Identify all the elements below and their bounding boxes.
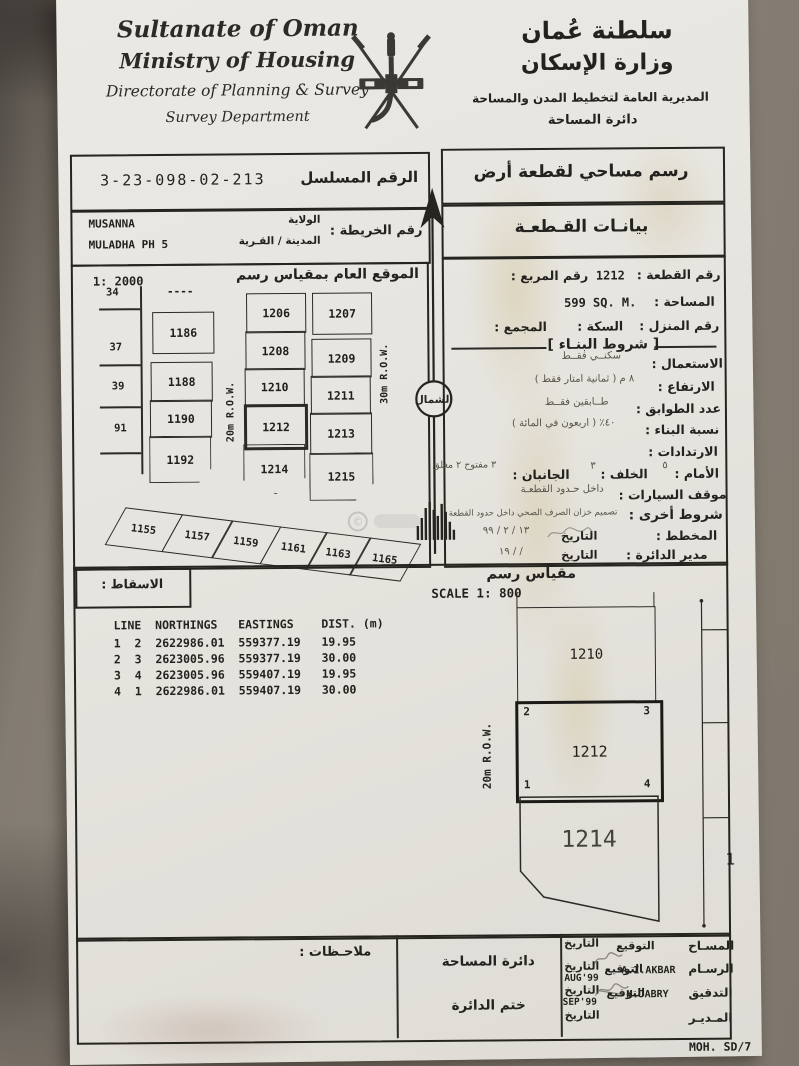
ministry-header-ar-line2: وزارة الإسكان (477, 50, 717, 77)
front-value: ٥ (662, 460, 667, 471)
scanned-survey-document: Sultanate of Oman Ministry of Housing Di… (0, 0, 799, 1066)
back-value: ٣ (590, 461, 595, 472)
floors-label: عدد الطوابق : (636, 401, 721, 417)
drawing-20m-row-label: 20m R.O.W. (480, 708, 494, 803)
survey-dept-label: دائرة المساحة (424, 953, 552, 970)
signature-scribble (590, 948, 624, 968)
other-conditions-label: شروط أخرى : (629, 507, 723, 524)
sides-label: الجانبان : (512, 467, 569, 482)
drawing-plot-upper: 1210 (516, 606, 656, 703)
parking-value: داخل حـدود القطعـة (521, 484, 604, 496)
other-conditions-value: تصميم خزان الصرف الصحي داخل حدود القطعة (449, 507, 618, 518)
director-role: المـديـر (689, 1011, 733, 1025)
coords-table-row: 1 2 2622986.01 559377.19 19.95 (114, 635, 356, 651)
map-plot: 1211 (311, 375, 371, 414)
back-label: الخلف : (600, 466, 647, 481)
ministry-header-en-line1: Sultanate of Oman (117, 14, 357, 43)
planner-signature-scribble (546, 521, 594, 543)
map-plot: 1188 (151, 362, 213, 402)
drawing-plot-main: 1212 (515, 700, 664, 803)
map-strip-tick (99, 308, 140, 310)
use-label: الاستعمال : (652, 356, 723, 372)
parking-label: موقف السيارات : (619, 487, 727, 503)
form-code: MOH. SD/7 (689, 1039, 751, 1053)
corner-point-4: 4 (644, 777, 651, 790)
ratio-label: نسبة البناء : (645, 422, 719, 438)
director-footer-date-label: التاريخ (565, 1009, 600, 1022)
street-no-label: السكة : (577, 318, 623, 333)
map-20m-row-label: 20m R.O.W. (225, 367, 237, 457)
checker-role: التدقيق (688, 986, 732, 1000)
surveyor-role: المسـاح (688, 939, 734, 953)
coords-table-row: 2 3 2623005.96 559377.19 30.00 (114, 651, 356, 667)
map-plot-highlighted: 1212 (244, 404, 308, 451)
ministry-header-en-line3: Directorate of Planning & Survey (87, 80, 387, 100)
serial-number-value: 3-23-098-02-213 (100, 170, 266, 189)
oman-national-emblem-icon (345, 28, 438, 141)
complex-label: المجمع : (494, 319, 547, 334)
corner-point-1: 1 (524, 778, 531, 791)
director-date-value: / / ١٩ (499, 546, 523, 557)
scale-label-ar: مقياس رسم (471, 566, 591, 583)
map-plot: 1208 (245, 331, 305, 370)
height-value: ٨ م ( ثمانية امتار فقط ) (535, 373, 635, 385)
street-label: 39 (112, 380, 125, 392)
wilayat-label: الولاية (260, 214, 320, 226)
map-plot: 1209 (311, 338, 371, 377)
projection-label: الاسقاط : (101, 576, 181, 592)
corner-point-2: 2 (523, 705, 530, 718)
map-plot: 1192 (149, 436, 211, 483)
plot-no-label: رقم القطعة : (637, 267, 721, 283)
ministry-header-en-line2: Ministry of Housing (117, 46, 357, 73)
coords-table-row: 4 1 2622986.01 559407.19 30.00 (114, 683, 356, 699)
sides-value: ٣ مفتوح ٢ مغلق (432, 459, 496, 471)
drawing-corner-tick (516, 593, 518, 608)
coords-table-header: LINE NORTHINGS EASTINGS DIST. (m) (114, 616, 384, 632)
map-plot: 1186 (152, 312, 214, 354)
height-label: الارتفاع : (658, 379, 715, 394)
planner-label: المخطط : (656, 528, 717, 543)
ratio-value: ٤٠٪ ( اربعون في المائة ) (512, 417, 616, 429)
location-map-title: الموقع العام بمقياس رسم (229, 266, 419, 283)
floors-value: طــابقين فقــط (545, 397, 609, 409)
drawing-corner-tick (653, 592, 655, 607)
map-30m-row-label: 30m R.O.W. (379, 329, 391, 419)
map-plot: 1206 (246, 293, 306, 333)
coords-table-row: 3 4 2623005.96 559407.19 19.95 (114, 667, 356, 683)
serial-number-label: الرقم المسلسل (293, 168, 418, 187)
street-label: 37 (109, 341, 122, 353)
map-plot: 1210 (245, 368, 305, 406)
dept-stamp-label: ختم الدائرة (425, 997, 553, 1014)
map-plot: 1213 (310, 412, 372, 454)
map-strip-tick (100, 364, 141, 366)
draftsman-role: الرسـام (688, 962, 733, 976)
scale-label-en: SCALE 1: 800 (431, 585, 521, 601)
street-label: 34 (106, 286, 119, 298)
corner-point-3: 3 (643, 704, 650, 717)
drawing-plot-lower: 1214 (561, 826, 617, 852)
area-label: المساحة : (654, 294, 715, 309)
setbacks-label: الارتدادات : (648, 444, 718, 460)
map-top-dashes: ---- (167, 285, 194, 298)
drawing-plot-lower-shape (513, 793, 664, 932)
map-strip-tick (100, 406, 141, 408)
svg-text:©: © (352, 515, 363, 528)
front-label: الأمام : (674, 466, 719, 481)
director-label: مدير الدائرة : (626, 547, 708, 563)
signature-scribble (592, 978, 630, 1000)
map-plot: 1190 (150, 400, 212, 438)
ministry-header-ar-line1: سلطنة عُمان (477, 16, 717, 46)
square-no-label: رقم المربع : (511, 268, 588, 284)
town-value: MULADHA PH 5 (89, 238, 169, 252)
plot-data-header: بيانـات القـطعـة (451, 216, 711, 238)
ministry-header-en-line4: Survey Department (118, 108, 358, 126)
edge-plot-number: 1 (725, 850, 735, 869)
area-value: 599 SQ. M. (564, 295, 636, 310)
street-label: 91 (114, 422, 127, 434)
plot-no-value: 1212 (596, 268, 625, 282)
map-strip-tick (100, 452, 141, 454)
notes-label: ملاحـظات : (299, 944, 371, 960)
house-no-label: رقم المنزل : (639, 318, 719, 334)
ministry-header-ar-line3: المديرية العامة لتخطيط المدن والمساحة (465, 90, 715, 106)
planner-date-value: ١٣ / ٢ / ٩٩ (483, 525, 529, 536)
map-plot: 1207 (312, 292, 372, 334)
ministry-header-ar-line4: دائرة المساحة (488, 112, 698, 129)
town-label: المدينة / القـرية (237, 235, 321, 248)
wilayat-value: MUSANNA (88, 217, 134, 230)
drawing-opposite-boundary (673, 596, 730, 932)
use-value: سكنــي فقــط (561, 350, 621, 361)
drawing-title: رسم مساحي لقطعة أرض (451, 161, 711, 183)
director-date-label: التاريخ (561, 548, 598, 562)
